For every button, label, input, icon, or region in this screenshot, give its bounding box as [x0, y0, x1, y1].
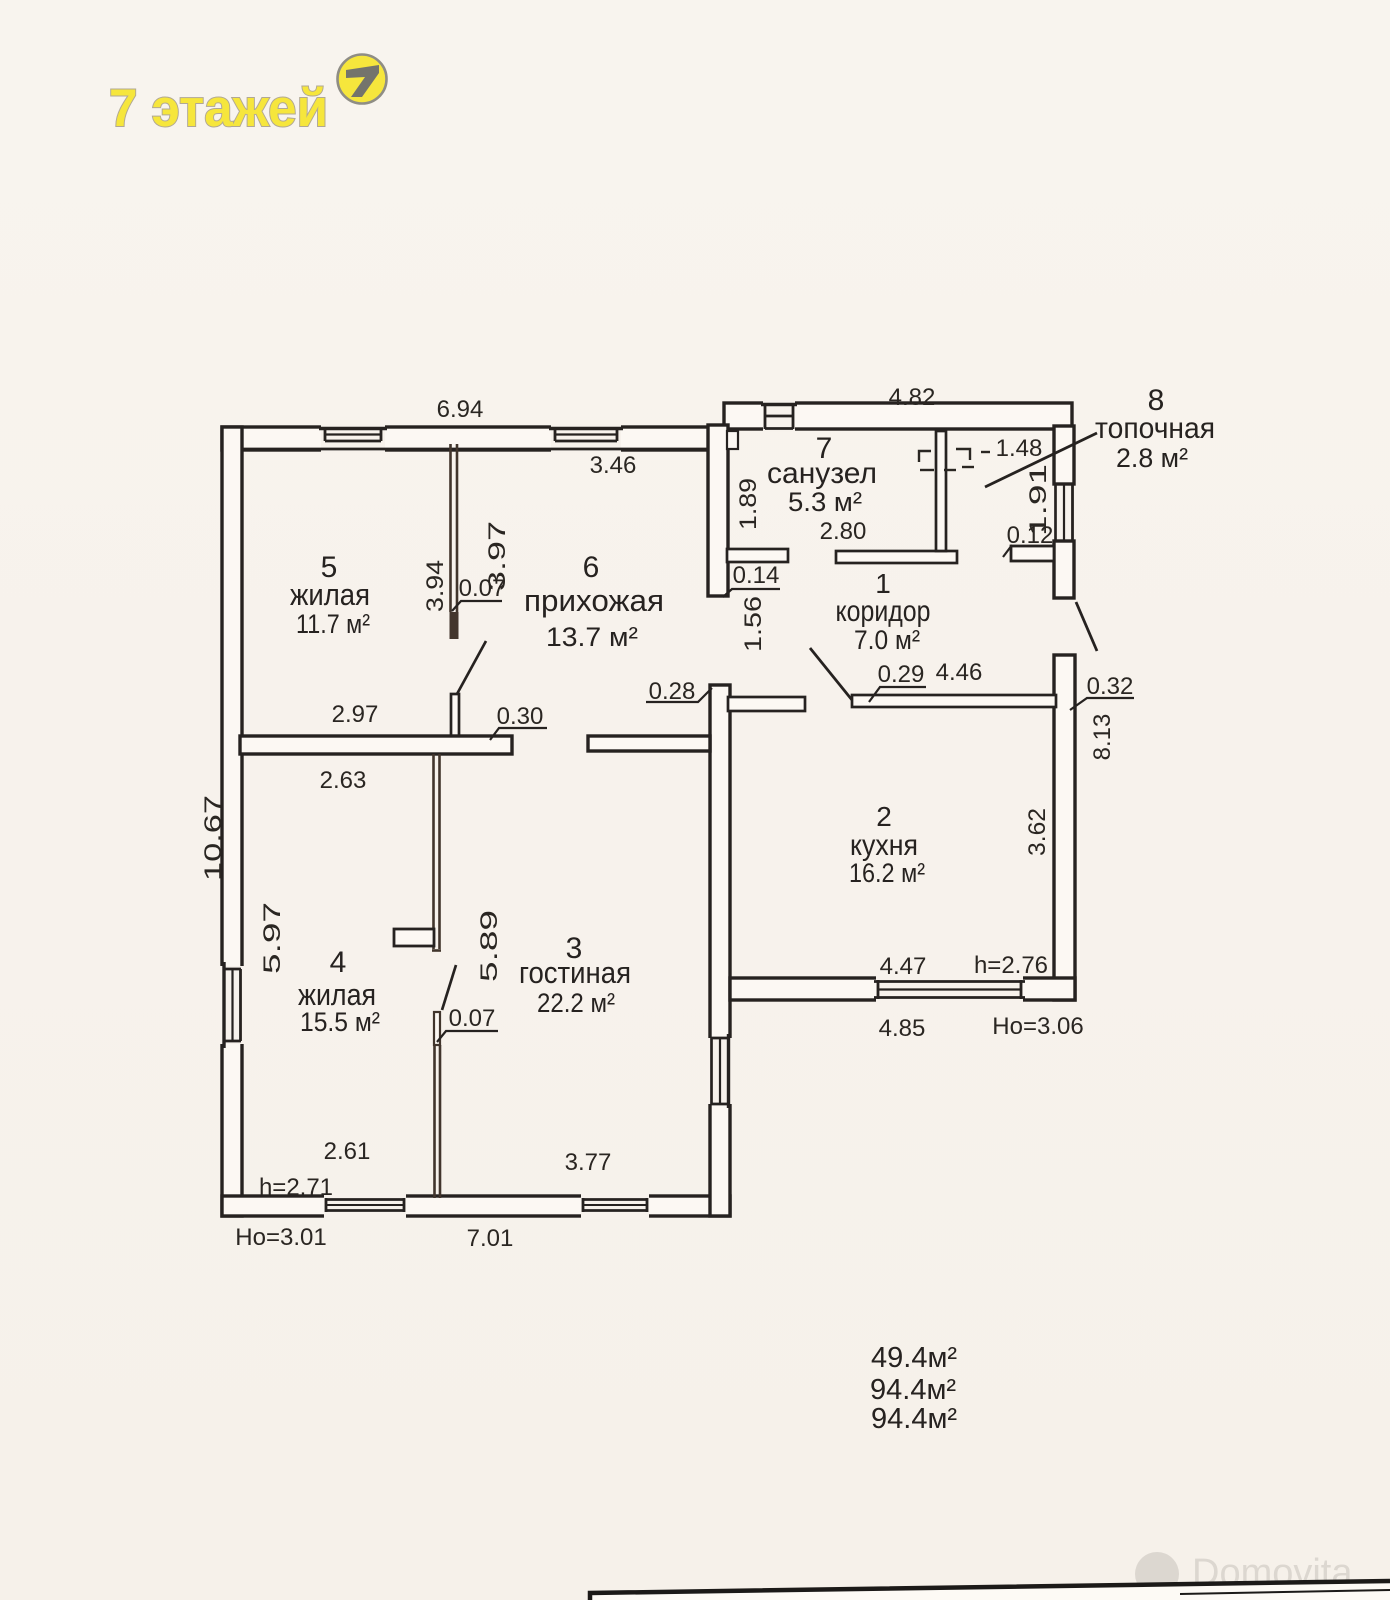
svg-text:2.61: 2.61: [324, 1138, 371, 1165]
svg-text:3.62: 3.62: [1024, 808, 1051, 856]
svg-text:5.3 м²: 5.3 м²: [788, 487, 862, 517]
svg-text:коридор: коридор: [836, 595, 931, 628]
svg-text:5.89: 5.89: [476, 910, 503, 982]
svg-text:6: 6: [583, 551, 600, 584]
svg-text:санузел: санузел: [767, 457, 877, 490]
svg-text:8.13: 8.13: [1089, 714, 1116, 761]
svg-text:0.29: 0.29: [878, 661, 925, 688]
svg-text:топочная: топочная: [1095, 412, 1215, 445]
svg-text:0.32: 0.32: [1087, 673, 1134, 700]
svg-text:1.89: 1.89: [735, 478, 762, 530]
svg-text:3.97: 3.97: [484, 521, 511, 591]
svg-text:1.91: 1.91: [1025, 464, 1052, 536]
svg-text:6.94: 6.94: [437, 396, 484, 423]
svg-text:0.07: 0.07: [449, 1005, 496, 1032]
svg-text:2.8 м²: 2.8 м²: [1116, 443, 1188, 473]
svg-text:1.56: 1.56: [740, 596, 767, 652]
svg-text:5.97: 5.97: [259, 902, 286, 974]
svg-text:3.77: 3.77: [565, 1149, 612, 1176]
svg-text:49.4м²: 49.4м²: [871, 1342, 957, 1374]
svg-text:94.4м²: 94.4м²: [871, 1403, 957, 1435]
svg-text:10.67: 10.67: [200, 795, 227, 881]
svg-text:0.14: 0.14: [733, 562, 780, 589]
svg-text:жилая: жилая: [290, 577, 370, 612]
svg-text:h=2.71: h=2.71: [259, 1174, 333, 1201]
svg-text:2.80: 2.80: [820, 518, 867, 545]
svg-text:22.2 м²: 22.2 м²: [537, 988, 615, 1018]
svg-text:4.46: 4.46: [936, 659, 983, 686]
svg-text:7.01: 7.01: [467, 1225, 514, 1252]
svg-text:Ho=3.01: Ho=3.01: [235, 1224, 326, 1251]
svg-text:3.46: 3.46: [590, 452, 637, 479]
svg-text:4.82: 4.82: [889, 384, 936, 411]
svg-text:4: 4: [330, 946, 347, 979]
svg-text:3.94: 3.94: [422, 560, 449, 612]
svg-text:2.63: 2.63: [320, 767, 367, 794]
svg-text:4.85: 4.85: [879, 1015, 926, 1042]
svg-text:гостиная: гостиная: [519, 955, 631, 990]
svg-text:7 этажей: 7 этажей: [109, 79, 328, 138]
svg-text:2: 2: [876, 801, 892, 832]
svg-text:h=2.76: h=2.76: [974, 952, 1048, 979]
svg-text:Ho=3.06: Ho=3.06: [992, 1013, 1083, 1040]
svg-text:16.2 м²: 16.2 м²: [849, 858, 925, 888]
svg-text:94.4м²: 94.4м²: [870, 1374, 956, 1406]
svg-text:1.48: 1.48: [996, 435, 1043, 462]
svg-text:11.7 м²: 11.7 м²: [296, 609, 370, 639]
svg-text:7.0 м²: 7.0 м²: [854, 625, 920, 655]
svg-text:15.5 м²: 15.5 м²: [300, 1007, 380, 1037]
svg-text:0.30: 0.30: [497, 703, 544, 730]
svg-text:13.7 м²: 13.7 м²: [546, 622, 638, 652]
svg-text:4.47: 4.47: [880, 953, 927, 980]
svg-text:2.97: 2.97: [332, 701, 379, 728]
svg-text:прихожая: прихожая: [524, 583, 664, 618]
